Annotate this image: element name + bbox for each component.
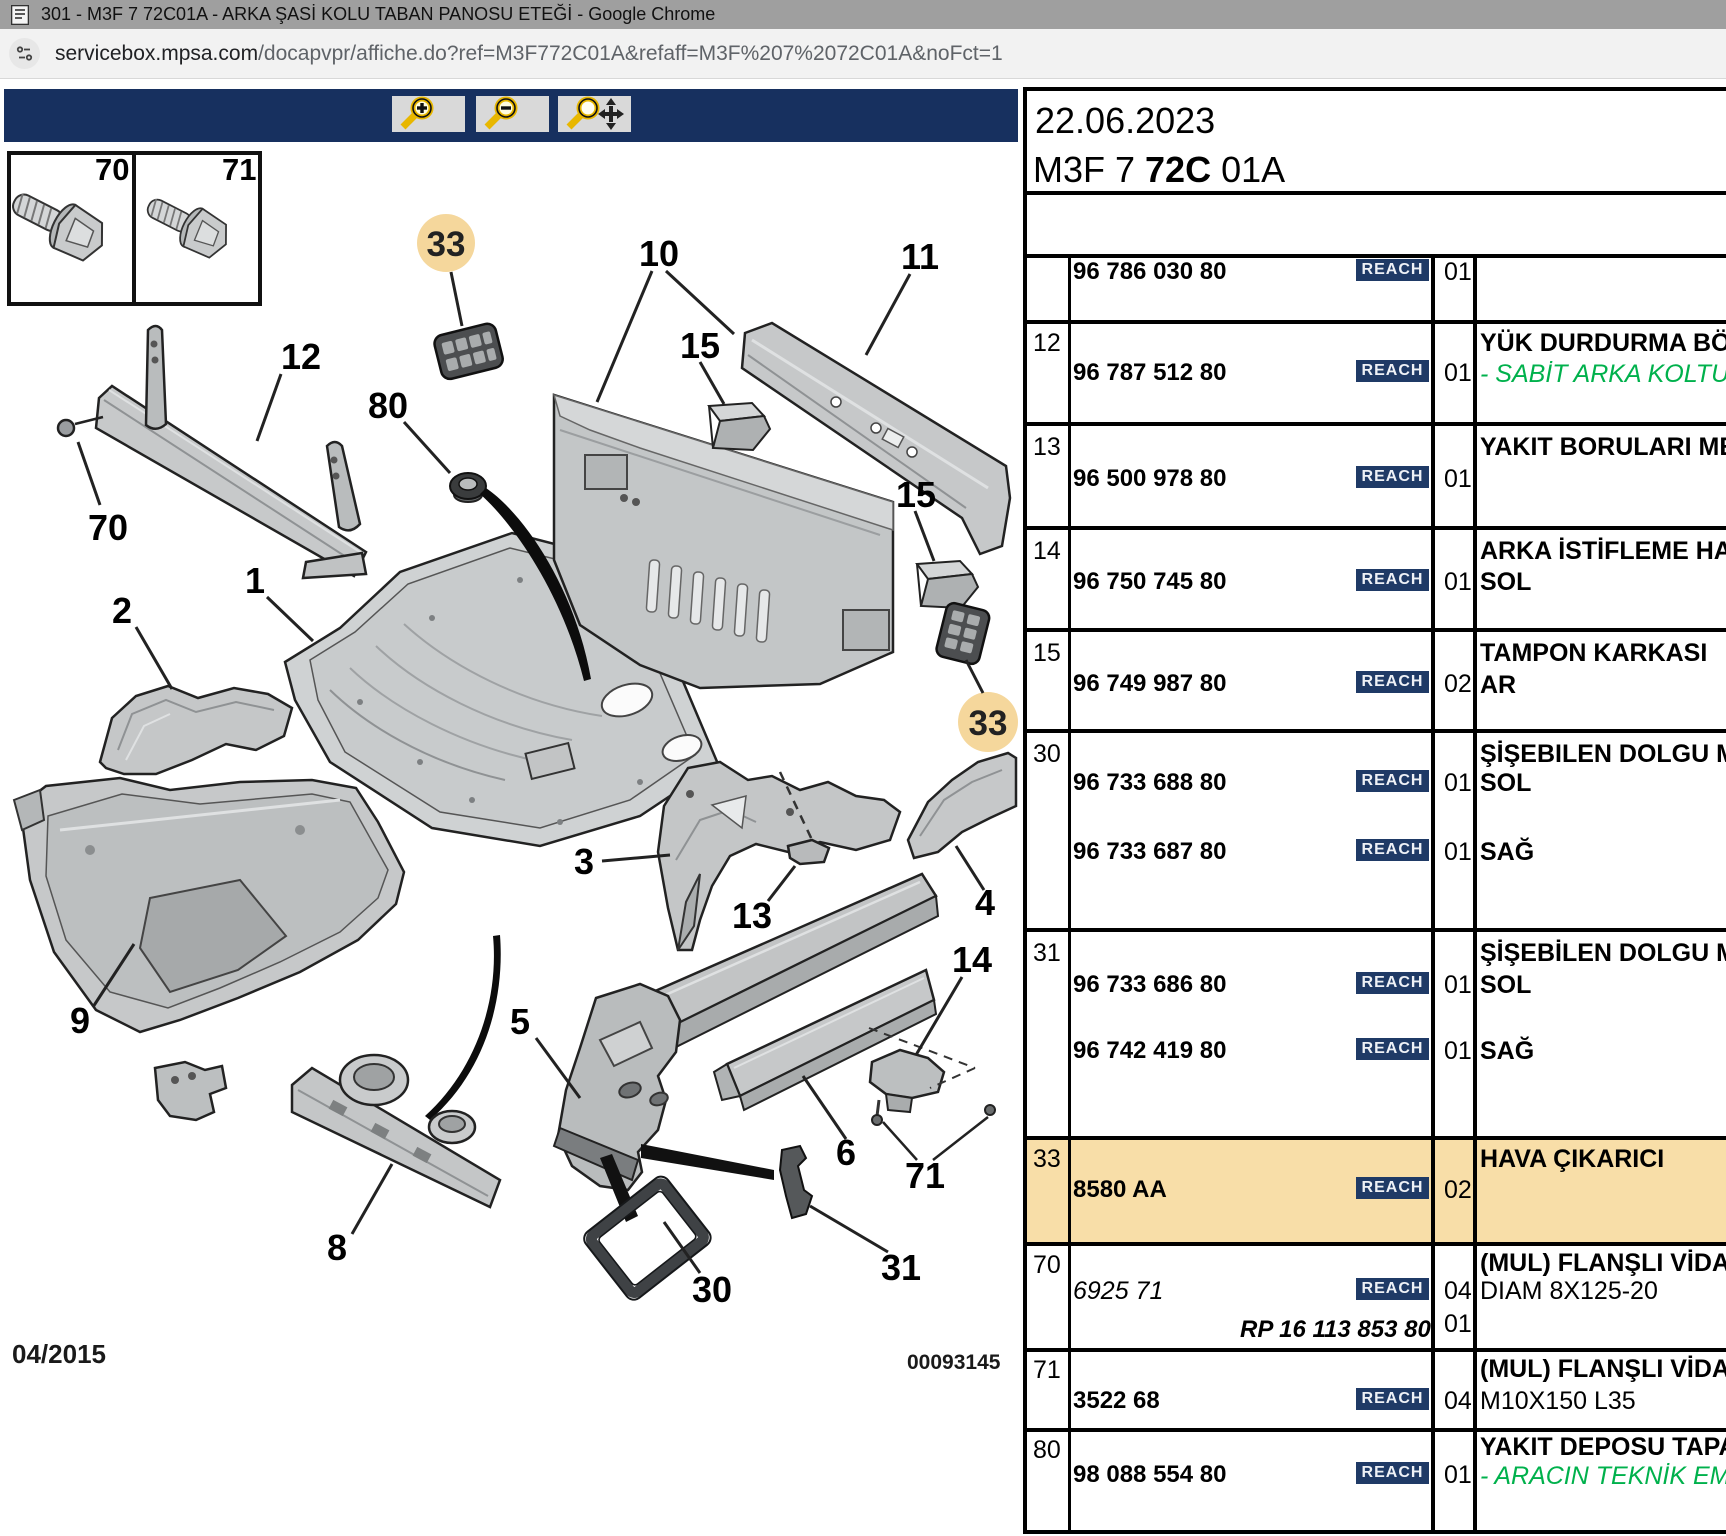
svg-text:70: 70 [88,507,128,548]
svg-text:5: 5 [510,1001,530,1042]
svg-text:11: 11 [901,236,939,277]
svg-text:8: 8 [327,1227,347,1268]
svg-text:71: 71 [222,152,256,187]
svg-text:71: 71 [905,1155,945,1196]
svg-text:9: 9 [70,1000,90,1041]
svg-text:33: 33 [969,704,1008,743]
svg-text:70: 70 [95,152,129,187]
svg-text:14: 14 [952,939,992,980]
svg-text:10: 10 [639,233,679,274]
svg-text:13: 13 [732,895,772,936]
svg-text:12: 12 [281,336,321,377]
svg-text:80: 80 [368,385,408,426]
svg-text:15: 15 [896,474,936,515]
svg-text:3: 3 [574,841,594,882]
svg-text:2: 2 [112,590,132,631]
svg-text:04/2015: 04/2015 [12,1339,106,1369]
svg-text:15: 15 [680,325,720,366]
svg-text:4: 4 [975,882,995,923]
svg-text:30: 30 [692,1269,732,1310]
svg-text:1: 1 [245,560,265,601]
svg-text:00093145: 00093145 [907,1351,1001,1374]
svg-text:33: 33 [427,225,466,264]
